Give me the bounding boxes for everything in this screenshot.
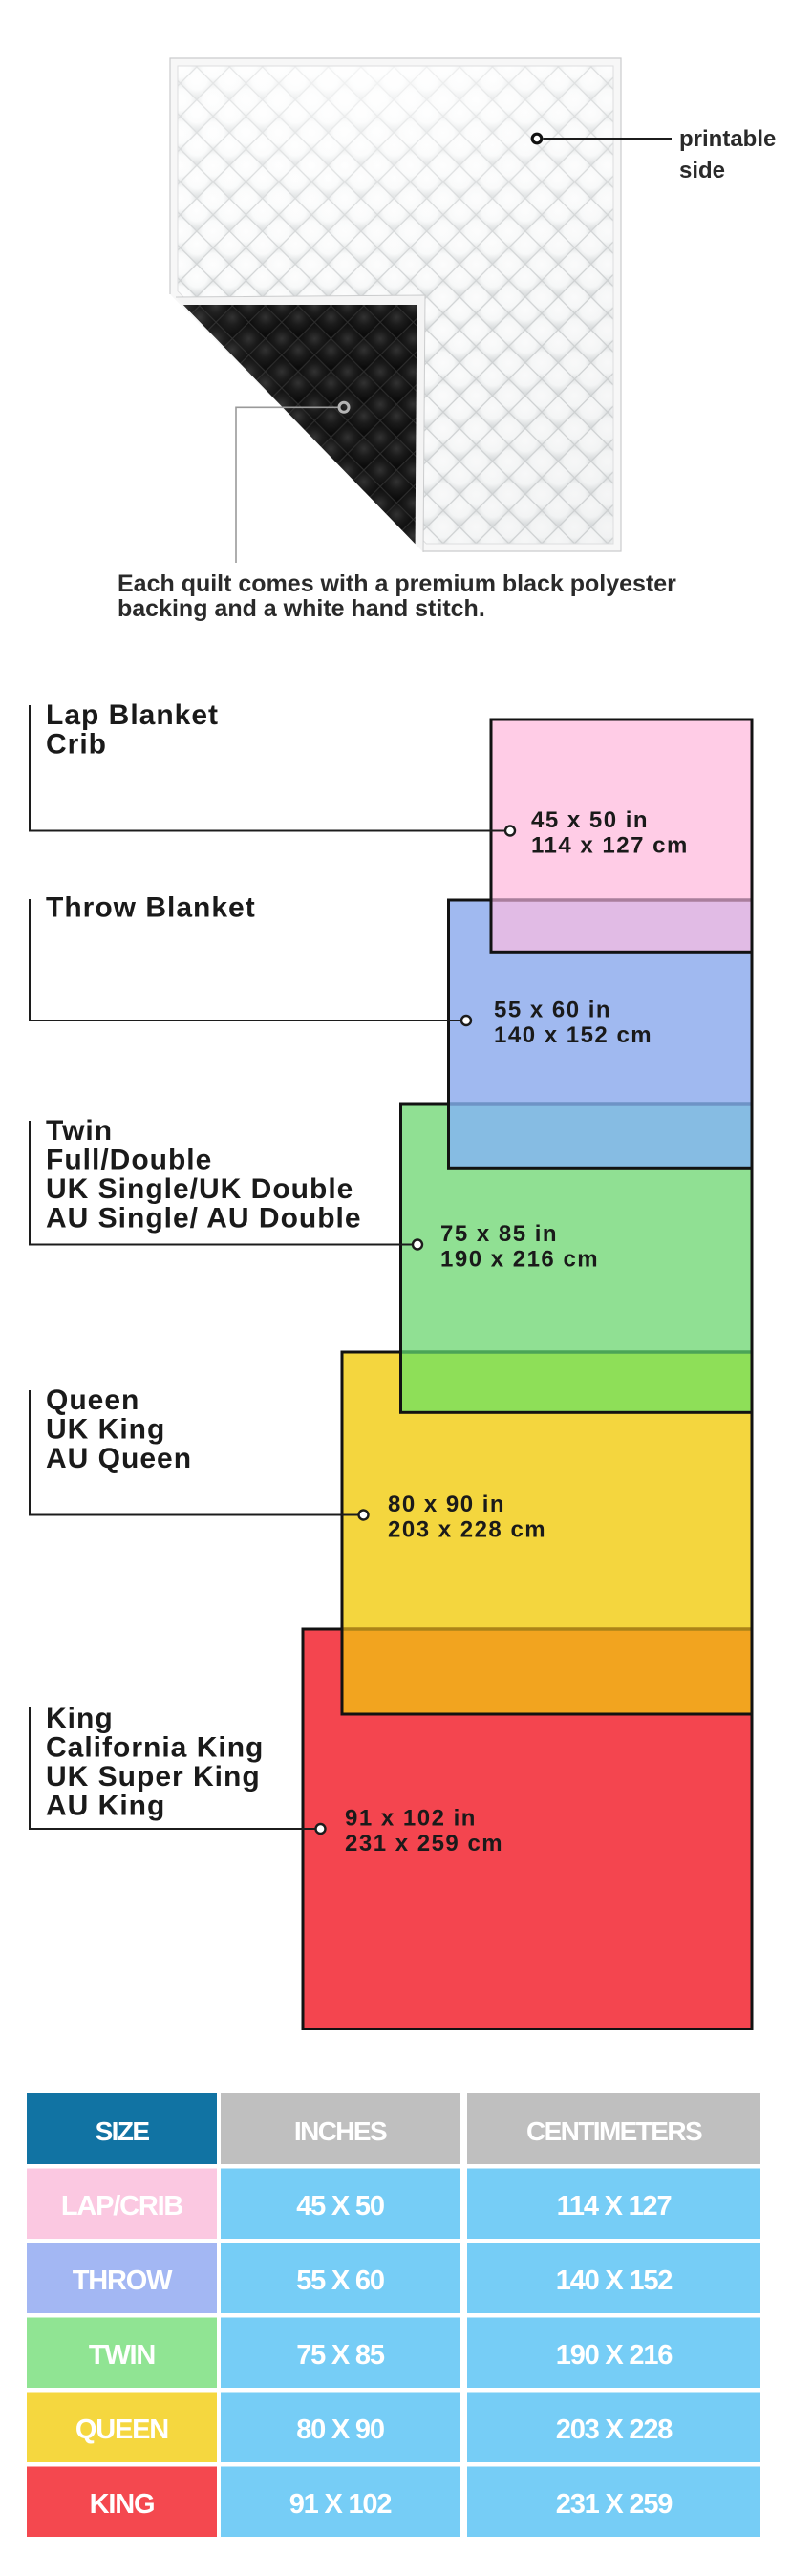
svg-text:190 X 216: 190 X 216 (556, 2340, 673, 2371)
svg-text:Twin: Twin (46, 1115, 113, 1147)
svg-text:side: side (679, 158, 725, 183)
svg-text:114 x 127 cm: 114 x 127 cm (531, 833, 689, 859)
svg-text:45 x 50 in: 45 x 50 in (531, 807, 649, 833)
svg-text:75 x 85 in: 75 x 85 in (440, 1221, 558, 1247)
svg-text:AU Single/ AU Double: AU Single/ AU Double (46, 1203, 362, 1234)
svg-text:203 x 228 cm: 203 x 228 cm (388, 1517, 546, 1543)
svg-text:Lap Blanket: Lap Blanket (46, 699, 219, 731)
svg-text:LAP/CRIB: LAP/CRIB (61, 2191, 183, 2222)
svg-text:140 x 152 cm: 140 x 152 cm (494, 1022, 652, 1048)
svg-text:SIZE: SIZE (96, 2116, 150, 2146)
svg-text:91 X 102: 91 X 102 (289, 2489, 392, 2520)
svg-text:140 X 152: 140 X 152 (556, 2265, 672, 2296)
svg-text:UK Super King: UK Super King (46, 1761, 261, 1792)
svg-text:Each quilt comes with a premiu: Each quilt comes with a premium black po… (118, 570, 676, 597)
svg-text:TWIN: TWIN (89, 2340, 155, 2371)
svg-text:AU Queen: AU Queen (46, 1443, 192, 1474)
svg-text:King: King (46, 1703, 114, 1734)
svg-text:91 x 102 in: 91 x 102 in (345, 1806, 477, 1832)
svg-text:INCHES: INCHES (294, 2116, 387, 2146)
svg-text:55 X 60: 55 X 60 (296, 2265, 384, 2296)
svg-text:Queen: Queen (46, 1385, 139, 1416)
svg-text:printable: printable (679, 126, 776, 152)
svg-text:231 x 259 cm: 231 x 259 cm (345, 1831, 503, 1857)
svg-text:114 X 127: 114 X 127 (557, 2191, 672, 2222)
svg-text:QUEEN: QUEEN (75, 2415, 168, 2445)
svg-text:UK Single/UK Double: UK Single/UK Double (46, 1173, 353, 1205)
svg-text:231 X 259: 231 X 259 (556, 2489, 673, 2520)
svg-text:KING: KING (90, 2489, 155, 2520)
svg-text:190 x 216 cm: 190 x 216 cm (440, 1247, 599, 1273)
svg-text:80 x 90 in: 80 x 90 in (388, 1492, 505, 1517)
svg-text:55 x 60 in: 55 x 60 in (494, 998, 611, 1023)
svg-text:Full/Double: Full/Double (46, 1145, 212, 1176)
svg-text:backing and a white hand stitc: backing and a white hand stitch. (118, 595, 485, 622)
svg-text:Throw Blanket: Throw Blanket (46, 892, 256, 924)
svg-text:Crib: Crib (46, 729, 107, 761)
svg-text:75 X 85: 75 X 85 (296, 2340, 385, 2371)
svg-text:THROW: THROW (73, 2265, 173, 2296)
svg-text:AU King: AU King (46, 1791, 165, 1822)
svg-text:80 X 90: 80 X 90 (296, 2415, 384, 2445)
svg-text:UK King: UK King (46, 1414, 165, 1446)
svg-text:California King: California King (46, 1732, 264, 1764)
svg-text:45 X 50: 45 X 50 (296, 2191, 384, 2222)
svg-text:CENTIMETERS: CENTIMETERS (526, 2116, 702, 2146)
svg-text:203 X 228: 203 X 228 (556, 2415, 673, 2445)
